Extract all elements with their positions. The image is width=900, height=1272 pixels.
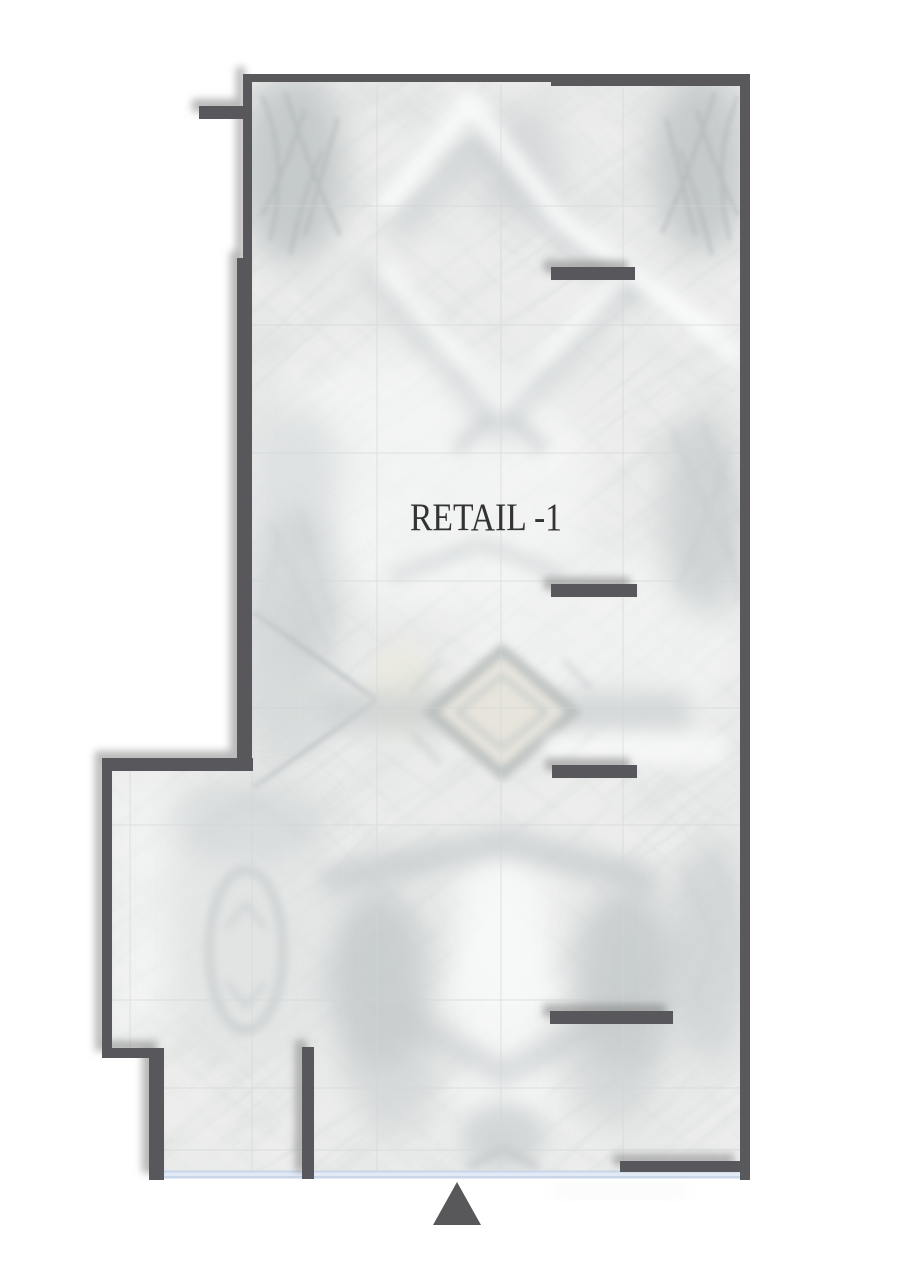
svg-text:RETAIL -1: RETAIL -1 [410,496,562,539]
